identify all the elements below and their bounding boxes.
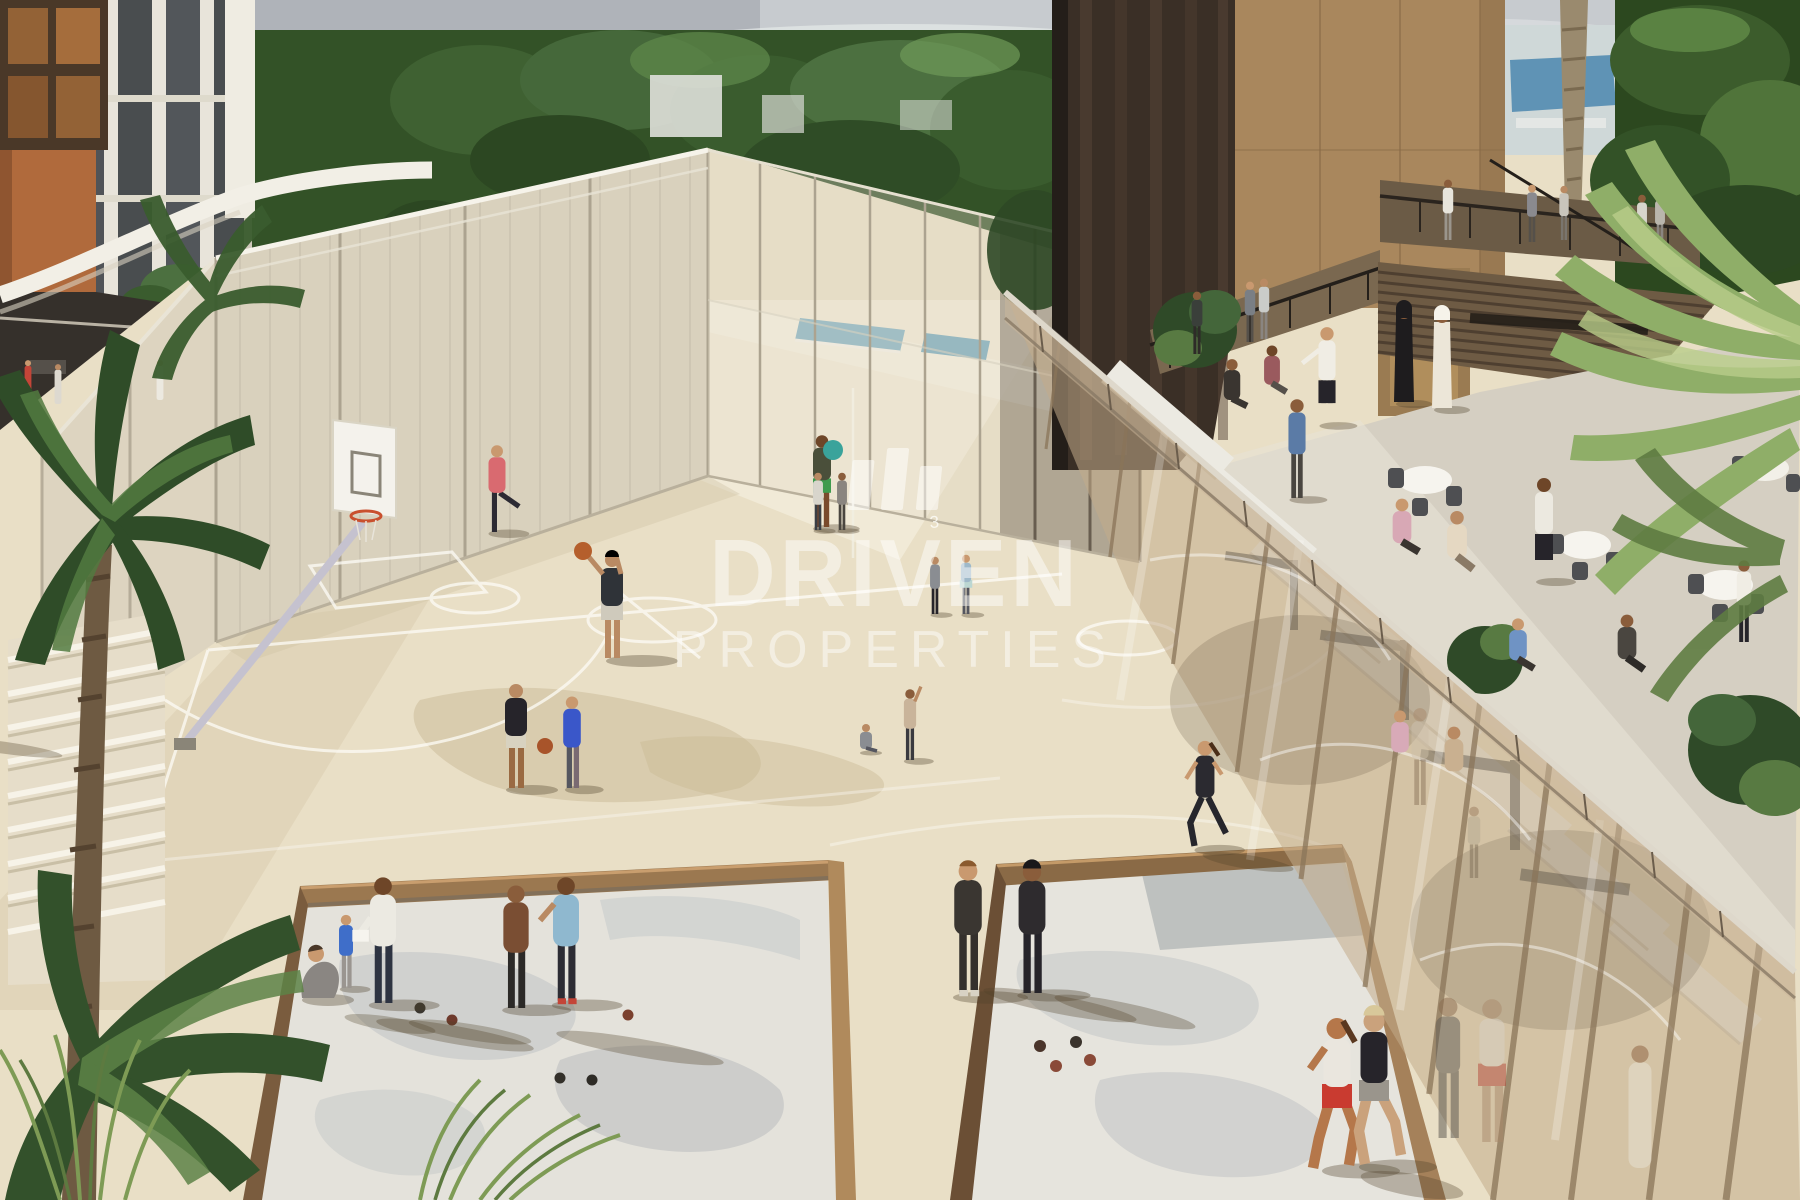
architectural-rendering: 3 (0, 0, 1800, 1200)
court-number: 3 (929, 512, 940, 532)
waiter (1302, 327, 1357, 430)
basketball (574, 542, 592, 560)
diner (1224, 359, 1247, 406)
teal-ball (823, 440, 843, 460)
diner (1264, 345, 1286, 391)
scene-canvas: 3 (0, 0, 1800, 1200)
